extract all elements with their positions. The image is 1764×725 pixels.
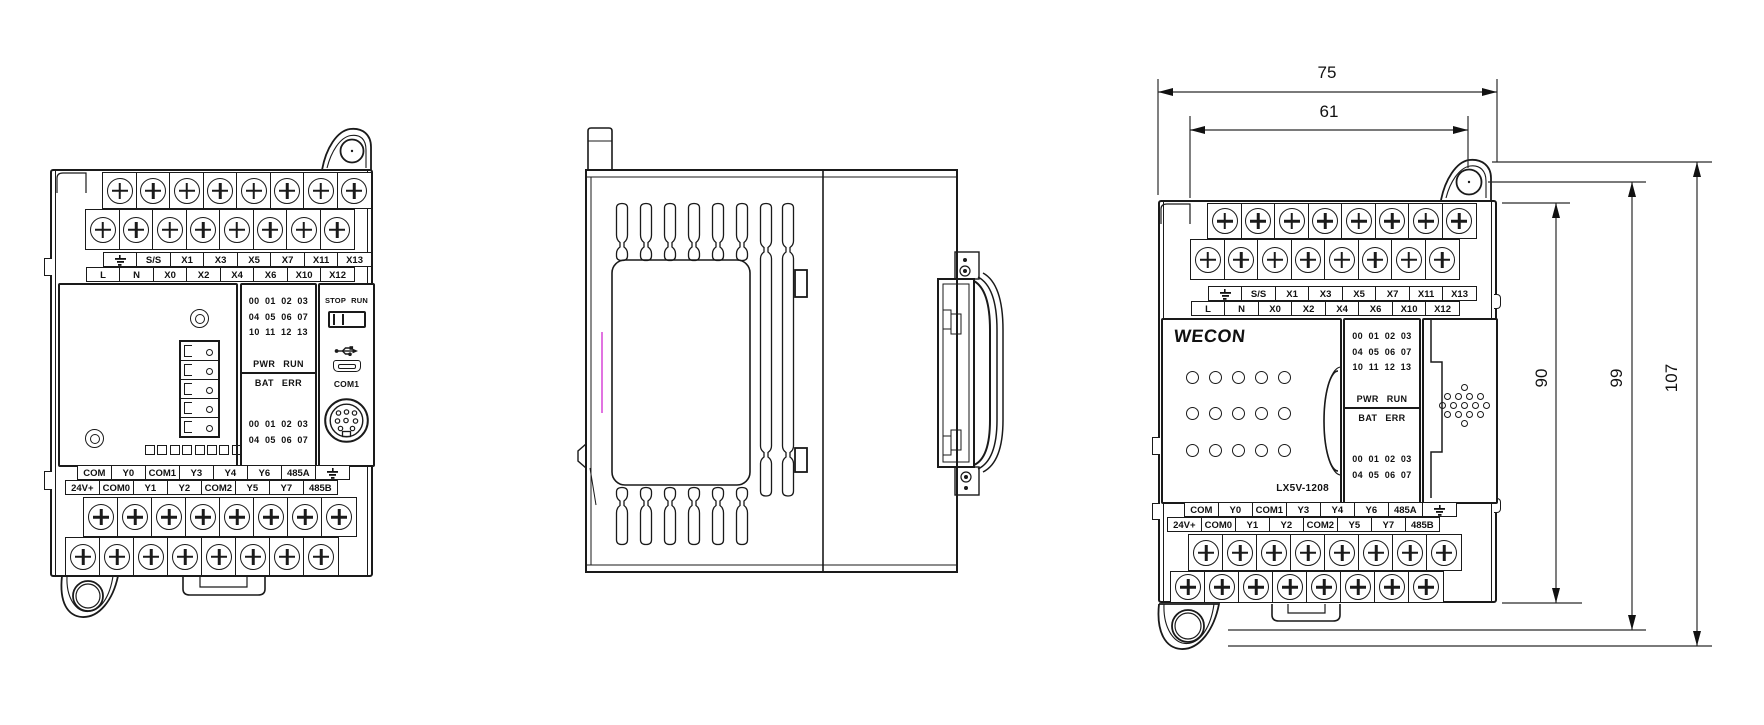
terminal-label: 485B — [1405, 517, 1440, 532]
vent-dot — [1455, 411, 1462, 418]
terminal-label: COM2 — [1303, 517, 1338, 532]
input-led-labels: 00 01 02 0304 05 06 0710 11 12 13 — [1345, 329, 1419, 376]
vent-dot — [1439, 402, 1446, 409]
terminal-screw-icon — [1345, 574, 1371, 600]
terminal-screw-icon — [1245, 208, 1271, 234]
terminal-label: Y3 — [1286, 502, 1321, 517]
vent-dot — [1477, 411, 1484, 418]
terminal-label: 485A — [1388, 502, 1423, 517]
terminal-screw-icon — [1209, 574, 1235, 600]
terminal-label: X0 — [1258, 301, 1293, 316]
terminal-screw-icon — [1431, 540, 1457, 566]
panel-divider — [1343, 407, 1421, 409]
plc-dimensional-drawing: S/SX1X3X5X7X11X13 LNX0X2X4X6X10X12 00 01… — [0, 0, 1764, 725]
screw-terminal — [1224, 239, 1259, 280]
led-label-row: 00 01 02 03 — [1345, 452, 1419, 468]
led-hole — [1232, 371, 1245, 384]
screw-terminal — [1188, 534, 1224, 571]
led-hole — [1209, 444, 1222, 457]
screw-terminal — [1391, 239, 1426, 280]
terminal-screw-icon — [1346, 208, 1372, 234]
led-hole — [1232, 444, 1245, 457]
screw-terminal — [1190, 239, 1225, 280]
terminal-screw-icon — [1446, 208, 1472, 234]
terminal-label: X1 — [1275, 286, 1310, 301]
bottom-terminal-row-upper — [1190, 534, 1462, 571]
terminal-screw-icon — [1243, 574, 1269, 600]
terminal-screw-icon — [1396, 247, 1422, 273]
vent-dot — [1483, 402, 1490, 409]
terminal-screw-icon — [1311, 574, 1337, 600]
terminal-label: X4 — [1325, 301, 1360, 316]
vent-dot — [1461, 384, 1468, 391]
terminal-label: 24V+ — [1167, 517, 1202, 532]
screw-terminal — [1324, 534, 1360, 571]
screw-terminal — [1392, 534, 1428, 571]
terminal-label: X5 — [1342, 286, 1377, 301]
terminal-screw-icon — [1312, 208, 1338, 234]
led-hole — [1186, 407, 1199, 420]
screw-terminal — [1408, 203, 1443, 239]
led-label-row: 04 05 06 07 — [1345, 468, 1419, 484]
terminal-label: Y0 — [1218, 502, 1253, 517]
terminal-screw-icon — [1175, 574, 1201, 600]
pwr-run-label: PWR RUN — [1345, 392, 1419, 408]
led-hole — [1255, 371, 1268, 384]
led-label-row: 04 05 06 07 — [1345, 345, 1419, 361]
screw-terminal — [1308, 203, 1343, 239]
terminal-screw-icon — [1227, 540, 1253, 566]
terminal-screw-icon — [1397, 540, 1423, 566]
terminal-label: COM — [1184, 502, 1219, 517]
terminal-screw-icon — [1228, 247, 1254, 273]
earth-ground-icon — [1422, 502, 1457, 517]
terminal-label: X6 — [1358, 301, 1393, 316]
front-view-dimensioned: S/SX1X3X5X7X11X13 LNX0X2X4X6X10X12 WECON… — [0, 0, 1764, 725]
screw-terminal — [1204, 571, 1240, 603]
vent-dot — [1444, 393, 1451, 400]
screw-terminal — [1257, 239, 1292, 280]
terminal-screw-icon — [1329, 540, 1355, 566]
terminal-label: S/S — [1241, 286, 1276, 301]
model-number: LX5V-1208 — [1276, 483, 1329, 494]
terminal-label: Y4 — [1320, 502, 1355, 517]
terminal-label: X13 — [1442, 286, 1477, 301]
front-cover: WECON LX5V-1208 — [1161, 318, 1342, 504]
terminal-screw-icon — [1195, 247, 1221, 273]
terminal-label: X12 — [1425, 301, 1460, 316]
terminal-screw-icon — [1261, 540, 1287, 566]
top-label-row-upper: S/SX1X3X5X7X11X13 — [1209, 286, 1477, 301]
terminal-label: Y6 — [1354, 502, 1389, 517]
terminal-screw-icon — [1329, 247, 1355, 273]
vent-dot — [1444, 411, 1451, 418]
terminal-screw-icon — [1429, 247, 1455, 273]
bat-err-label: BAT ERR — [1345, 411, 1419, 427]
terminal-label: Y1 — [1235, 517, 1270, 532]
led-hole — [1278, 407, 1291, 420]
led-hole — [1232, 407, 1245, 420]
terminal-screw-icon — [1363, 540, 1389, 566]
terminal-label: Y2 — [1269, 517, 1304, 532]
screw-terminal — [1341, 203, 1376, 239]
terminal-screw-icon — [1279, 208, 1305, 234]
screw-terminal — [1358, 534, 1394, 571]
top-terminal-row-lower — [1192, 239, 1460, 280]
bottom-label-row-lower: 24V+COM0Y1Y2COM2Y5Y7485B — [1168, 517, 1440, 532]
terminal-screw-icon — [1379, 208, 1405, 234]
screw-terminal — [1238, 571, 1274, 603]
screw-terminal — [1256, 534, 1292, 571]
screw-terminal — [1374, 571, 1410, 603]
terminal-label: COM1 — [1252, 502, 1287, 517]
terminal-screw-icon — [1413, 208, 1439, 234]
screw-terminal — [1222, 534, 1258, 571]
bottom-terminal-row-lower — [1172, 571, 1444, 603]
side-latch — [1152, 503, 1160, 520]
screw-terminal — [1408, 571, 1444, 603]
screw-terminal — [1272, 571, 1308, 603]
screw-terminal — [1274, 203, 1309, 239]
top-terminal-row-upper — [1209, 203, 1477, 239]
led-hole — [1278, 371, 1291, 384]
terminal-screw-icon — [1193, 540, 1219, 566]
terminal-label: Y5 — [1337, 517, 1372, 532]
screw-terminal — [1170, 571, 1206, 603]
screw-terminal — [1375, 203, 1410, 239]
vent-dot — [1461, 420, 1468, 427]
side-latch — [1152, 437, 1160, 455]
led-label-row: 10 11 12 13 — [1345, 360, 1419, 376]
led-hole — [1209, 371, 1222, 384]
led-hole — [1186, 371, 1199, 384]
bottom-label-row-upper: COMY0COM1Y3Y4Y6485A — [1185, 502, 1457, 517]
top-label-row-lower: LNX0X2X4X6X10X12 — [1192, 301, 1460, 316]
wecon-logo: WECON — [1173, 326, 1247, 347]
output-led-labels: 00 01 02 0304 05 06 07 — [1345, 452, 1419, 483]
screw-terminal — [1207, 203, 1242, 239]
terminal-label: Y7 — [1371, 517, 1406, 532]
led-indicator-panel: 00 01 02 0304 05 06 0710 11 12 13 PWR RU… — [1343, 318, 1421, 504]
screw-terminal — [1241, 203, 1276, 239]
terminal-screw-icon — [1379, 574, 1405, 600]
led-hole — [1255, 444, 1268, 457]
vent-dot — [1477, 393, 1484, 400]
screw-terminal — [1291, 239, 1326, 280]
led-hole — [1209, 407, 1222, 420]
terminal-label: X11 — [1409, 286, 1444, 301]
expansion-cover — [1422, 318, 1498, 504]
screw-terminal — [1426, 534, 1462, 571]
terminal-label: COM0 — [1201, 517, 1236, 532]
terminal-label: X10 — [1392, 301, 1427, 316]
screw-terminal — [1358, 239, 1393, 280]
terminal-label: X3 — [1308, 286, 1343, 301]
terminal-label: X2 — [1291, 301, 1326, 316]
vent-dot — [1455, 393, 1462, 400]
screw-terminal — [1324, 239, 1359, 280]
terminal-screw-icon — [1362, 247, 1388, 273]
terminal-label: L — [1191, 301, 1226, 316]
earth-ground-icon — [1208, 286, 1243, 301]
led-hole — [1278, 444, 1291, 457]
vent-dot — [1466, 411, 1473, 418]
terminal-label: N — [1224, 301, 1259, 316]
screw-terminal — [1306, 571, 1342, 603]
terminal-screw-icon — [1295, 540, 1321, 566]
screw-terminal — [1442, 203, 1477, 239]
screw-terminal — [1425, 239, 1460, 280]
vent-dot — [1472, 402, 1479, 409]
screw-terminal — [1340, 571, 1376, 603]
led-hole — [1186, 444, 1199, 457]
screw-terminal — [1290, 534, 1326, 571]
terminal-screw-icon — [1295, 247, 1321, 273]
led-label-row: 00 01 02 03 — [1345, 329, 1419, 345]
vent-dot-diamond — [1432, 383, 1496, 428]
terminal-screw-icon — [1277, 574, 1303, 600]
terminal-label: X7 — [1375, 286, 1410, 301]
vent-dot — [1466, 393, 1473, 400]
led-hole — [1255, 407, 1268, 420]
led-hole-grid — [1181, 359, 1296, 469]
side-latch — [1494, 294, 1501, 309]
vent-dot — [1450, 402, 1457, 409]
terminal-screw-icon — [1262, 247, 1288, 273]
terminal-screw-icon — [1212, 208, 1238, 234]
vent-dot — [1461, 402, 1468, 409]
terminal-screw-icon — [1413, 574, 1439, 600]
